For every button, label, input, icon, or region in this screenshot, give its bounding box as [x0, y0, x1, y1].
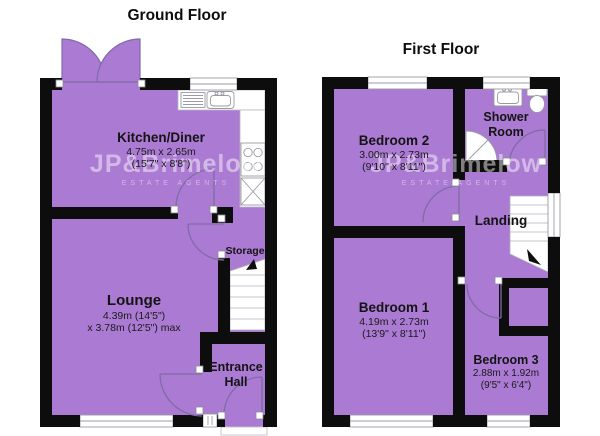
room-name: Bedroom 2: [359, 133, 430, 149]
appliance-icon: [241, 178, 265, 205]
room-name-line2: Room: [483, 125, 528, 140]
room-name: Kitchen/Diner: [117, 130, 205, 146]
first-floor-title: First Floor: [403, 41, 480, 59]
room-dim-imperial: (9'10" x 8'11"): [359, 161, 430, 173]
room-name: Bedroom 3: [473, 353, 539, 368]
room-dim-metric2: x 3.78m (12'5") max: [87, 322, 180, 334]
room-dim-imperial: (9'5" x 6'4"): [473, 380, 539, 392]
meter-box-icon: [203, 414, 217, 427]
basin-icon: [494, 87, 522, 106]
room-label-kitchen: Kitchen/Diner 4.75m x 2.65m (15'7" x 8'8…: [117, 130, 205, 171]
room-label-bedroom3: Bedroom 3 2.88m x 1.92m (9'5" x 6'4"): [473, 353, 539, 391]
stairs-ground: [230, 259, 265, 330]
room-label-lounge: Lounge 4.39m (14'5") x 3.78m (12'5") max: [87, 292, 180, 334]
floorplan-canvas: JP&Brimelow ESTATE AGENTS JP&Brimelow ES…: [0, 0, 600, 436]
room-dim-imperial: (15'7" x 8'8"): [117, 158, 205, 170]
room-label-bedroom1: Bedroom 1 4.19m x 2.73m (13'9" x 8'11"): [359, 300, 430, 341]
front-step: [221, 427, 267, 435]
room-label-storage: Storage: [225, 245, 264, 257]
room-name-line1: Entrance: [209, 360, 263, 375]
sink-icon: [181, 92, 234, 109]
ground-floor-title: Ground Floor: [127, 7, 226, 25]
french-doors-icon: [62, 39, 140, 82]
room-dim-metric: 4.19m x 2.73m: [359, 316, 430, 328]
room-name-line1: Shower: [483, 110, 528, 125]
room-dim-imperial: (13'9" x 8'11"): [359, 328, 430, 340]
room-dim-metric: 4.75m x 2.65m: [117, 146, 205, 158]
room-label-entrance-hall: Entrance Hall: [209, 360, 263, 390]
room-name-line2: Hall: [209, 375, 263, 390]
room-label-shower-room: Shower Room: [483, 110, 528, 140]
room-label-bedroom2: Bedroom 2 3.00m x 2.73m (9'10" x 8'11"): [359, 133, 430, 174]
room-name: Lounge: [87, 292, 180, 310]
hob-icon: [241, 143, 265, 176]
room-label-landing: Landing: [475, 213, 528, 229]
room-dim-metric: 3.00m x 2.73m: [359, 149, 430, 161]
room-dim-metric: 2.88m x 1.92m: [473, 368, 539, 380]
room-dim-metric: 4.39m (14'5"): [87, 310, 180, 322]
room-name: Bedroom 1: [359, 300, 430, 316]
